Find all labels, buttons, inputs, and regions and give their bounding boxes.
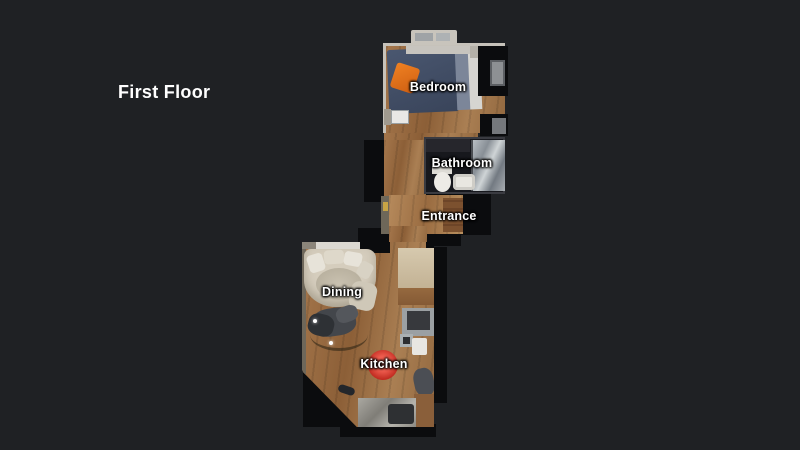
bathroom-sink bbox=[453, 174, 475, 190]
scan-point-dot[interactable] bbox=[313, 319, 317, 323]
rug-edge bbox=[310, 318, 368, 351]
coat-hook bbox=[383, 202, 388, 211]
bedroom-window-unit bbox=[411, 30, 457, 45]
wall-corner bbox=[302, 242, 316, 249]
radiator bbox=[391, 110, 409, 124]
kitchen-cabinet bbox=[398, 248, 434, 290]
wall-picture bbox=[490, 60, 505, 86]
room-label-entrance[interactable]: Entrance bbox=[421, 209, 476, 223]
corridor[interactable] bbox=[389, 226, 427, 244]
appliance-top bbox=[407, 311, 430, 330]
wall-stub bbox=[384, 109, 391, 125]
kitchen-white-goods bbox=[412, 338, 427, 355]
cutting-board bbox=[414, 394, 434, 427]
window-pane bbox=[436, 33, 450, 41]
cutout-right-of-kitchen bbox=[432, 247, 447, 403]
scan-point-dot[interactable] bbox=[329, 341, 333, 345]
shoes bbox=[337, 384, 356, 397]
kitchen-counter-wood bbox=[398, 288, 434, 305]
sink-basin-small bbox=[403, 337, 410, 344]
bathroom-counter bbox=[426, 139, 470, 152]
room-label-bathroom[interactable]: Bathroom bbox=[432, 156, 493, 170]
room-label-kitchen[interactable]: Kitchen bbox=[360, 357, 407, 371]
floorplan-view[interactable]: First Floor bbox=[0, 0, 800, 450]
sofa-pillow bbox=[324, 249, 345, 264]
bed-headboard bbox=[406, 46, 470, 54]
hallway[interactable] bbox=[384, 140, 426, 198]
dresser bbox=[492, 118, 506, 134]
cutout-left-of-hall bbox=[364, 140, 385, 202]
window-pane bbox=[415, 33, 433, 41]
toilet-bowl bbox=[434, 172, 451, 192]
room-label-dining[interactable]: Dining bbox=[322, 285, 362, 299]
kitchen-sink-basin bbox=[388, 404, 414, 424]
room-label-bedroom[interactable]: Bedroom bbox=[410, 80, 466, 94]
floor-title: First Floor bbox=[118, 82, 210, 103]
